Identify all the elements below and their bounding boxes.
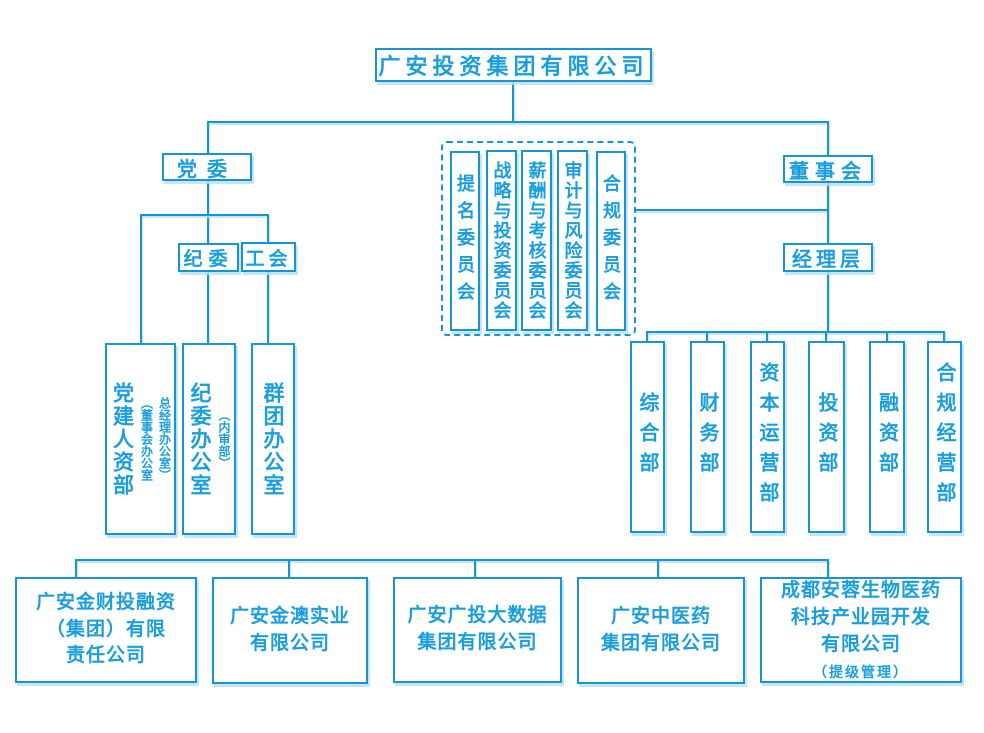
org-root-label: 广安投资集团有限公司: [378, 49, 648, 81]
department-box-financing: 融资部: [869, 341, 905, 533]
committee-box-nomination: 提名委员会: [450, 151, 480, 331]
mass-org-office-label: 群团办公室: [258, 382, 288, 497]
discipline-committee-box: 纪委: [178, 243, 239, 272]
connector-line: [512, 82, 514, 122]
committee-label-compliance: 合规委员会: [598, 174, 624, 309]
discipline-office-note: （内审部）: [216, 409, 233, 469]
discipline-office-label: 纪委办公室: [185, 382, 215, 497]
connector-line: [267, 214, 269, 242]
department-box-investment: 投资部: [808, 341, 845, 533]
subsidiary-management-note: （提级管理）: [813, 662, 909, 682]
committee-box-audit-risk: 审计与风险委员会: [557, 150, 588, 331]
connector-line: [474, 559, 476, 577]
subsidiary-box-jincai-investment: 广安金财投融资 （集团）有限 责任公司: [15, 577, 197, 683]
connector-line: [827, 121, 829, 155]
department-label-general: 综合部: [633, 392, 662, 482]
subsidiary-name: 广安金财投融资 （集团）有限 责任公司: [36, 590, 176, 671]
connector-line: [75, 559, 77, 577]
board-of-directors-box: 董事会: [783, 155, 873, 183]
subsidiary-name: 成都安蓉生物医药 科技产业园开发 有限公司: [781, 578, 941, 659]
department-label-financing: 融资部: [873, 392, 902, 482]
connector-line: [646, 331, 648, 341]
board-of-directors-label: 董事会: [789, 155, 867, 184]
committee-box-compliance: 合规委员会: [596, 151, 626, 331]
committee-box-strategy-investment: 战略与投资委员会: [486, 150, 517, 331]
connector-line: [140, 214, 142, 343]
discipline-office-box: 纪委办公室 （内审部）: [182, 343, 236, 535]
labor-union-label: 工会: [245, 244, 291, 271]
connector-line: [207, 121, 829, 123]
department-label-capital-operation: 资本运营部: [753, 362, 782, 512]
department-box-compliance-operation: 合规经营部: [927, 341, 962, 533]
committee-box-compensation-appraisal: 薪酬与考核委员会: [521, 150, 552, 331]
connector-line: [646, 331, 945, 333]
committee-label-strategy-investment: 战略与投资委员会: [489, 161, 515, 321]
department-label-investment: 投资部: [812, 392, 841, 482]
management-layer-label: 经理层: [792, 243, 864, 272]
department-label-compliance-operation: 合规经营部: [930, 362, 959, 512]
org-root-box: 广安投资集团有限公司: [375, 48, 652, 82]
connector-line: [635, 209, 829, 211]
subsidiary-name: 广安金澳实业 有限公司: [230, 604, 350, 658]
connector-line: [825, 331, 827, 341]
connector-line: [827, 183, 829, 243]
connector-line: [943, 331, 945, 341]
connector-line: [267, 272, 269, 343]
subsidiary-name: 广安广投大数据 集团有限公司: [407, 603, 547, 657]
connector-line: [207, 121, 209, 153]
subsidiary-box-jinao-industrial: 广安金澳实业 有限公司: [212, 577, 368, 684]
connector-line: [657, 559, 659, 577]
connector-line: [827, 559, 829, 577]
connector-line: [75, 559, 829, 561]
department-box-finance: 财务部: [690, 341, 725, 533]
labor-union-box: 工会: [241, 242, 296, 272]
mass-org-office-box: 群团办公室: [251, 343, 295, 535]
party-hr-office-label: 党建人资部: [108, 382, 138, 497]
subsidiary-box-anrong-biomedicine: 成都安蓉生物医药 科技产业园开发 有限公司 （提级管理）: [760, 577, 962, 683]
department-label-finance: 财务部: [693, 392, 722, 482]
management-layer-box: 经理层: [783, 243, 873, 272]
connector-line: [827, 272, 829, 332]
connector-line: [706, 331, 708, 341]
subsidiary-name: 广安中医药 集团有限公司: [601, 604, 721, 658]
subsidiary-box-tcm-group: 广安中医药 集团有限公司: [577, 577, 745, 684]
department-box-capital-operation: 资本运营部: [750, 341, 785, 533]
connector-line: [886, 331, 888, 341]
connector-line: [207, 180, 209, 243]
connector-line: [766, 331, 768, 341]
org-chart: 广安投资集团有限公司 党委 纪委 工会 党建人资部 （董事会办公室 总经理办公室…: [0, 0, 984, 733]
party-hr-office-box: 党建人资部 （董事会办公室 总经理办公室）: [105, 343, 176, 535]
connector-line: [288, 559, 290, 577]
committee-label-audit-risk: 审计与风险委员会: [560, 161, 586, 321]
connector-line: [207, 272, 209, 343]
party-hr-office-note-1: （董事会办公室: [139, 397, 156, 481]
committee-label-nomination: 提名委员会: [452, 174, 478, 309]
committee-label-compensation-appraisal: 薪酬与考核委员会: [524, 161, 550, 321]
party-hr-office-note-2: 总经理办公室）: [157, 397, 174, 481]
party-committee-box: 党委: [162, 153, 252, 181]
connector-line: [140, 214, 269, 216]
discipline-committee-label: 纪委: [183, 244, 233, 271]
department-box-general: 综合部: [630, 341, 665, 533]
subsidiary-box-big-data-group: 广安广投大数据 集团有限公司: [393, 577, 562, 683]
party-committee-label: 党委: [177, 153, 237, 182]
